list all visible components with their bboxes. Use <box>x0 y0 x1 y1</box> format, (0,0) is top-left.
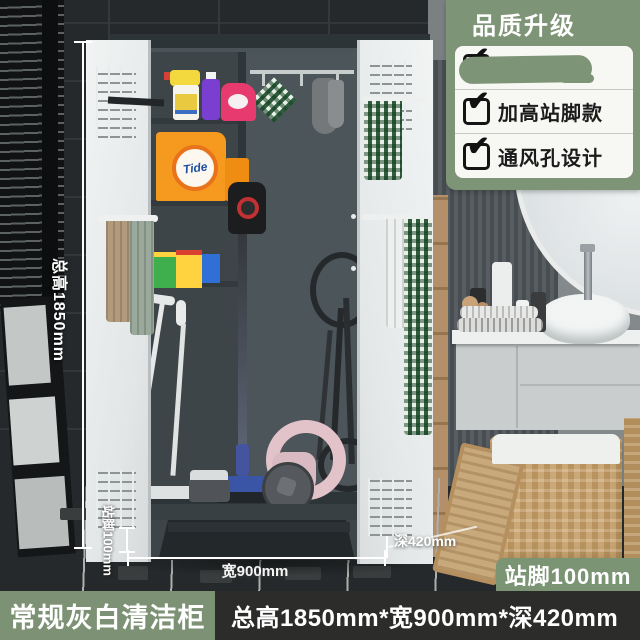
depth-label: 深420mm <box>394 531 474 551</box>
vent-grid <box>368 478 412 536</box>
dimension-cap <box>74 547 92 549</box>
dimension-cap <box>74 41 92 43</box>
towel-gray <box>130 221 154 335</box>
spec-text: 总高1850mm*宽900mm*深420mm <box>231 598 618 633</box>
height-dimension-line <box>82 42 84 548</box>
vanity-cabinet <box>456 344 640 430</box>
window-pane <box>4 305 51 386</box>
promo-title: 品质升级 <box>446 6 602 41</box>
lock-knob <box>351 214 356 219</box>
leg-height-badge: 站脚100mm <box>496 558 640 591</box>
leg-dimension-line <box>126 528 128 552</box>
purple-bottle <box>202 79 220 120</box>
hanging-cloth <box>328 80 344 128</box>
product-box <box>202 254 220 283</box>
detergent-logo: Tide <box>172 145 218 191</box>
product-box <box>176 250 202 288</box>
rattan-basket-tall <box>624 418 640 572</box>
detergent-jug-label <box>228 94 248 109</box>
dimension-cap <box>119 527 135 529</box>
check-icon: ✔ <box>463 143 490 170</box>
detergent-brand-text: Tide <box>182 159 208 176</box>
brush-grip <box>176 300 186 326</box>
product-name-bar: 常规灰白清洁柜 <box>0 591 215 640</box>
faucet <box>584 248 592 300</box>
leg-badge-text: 站脚100mm <box>505 559 632 591</box>
stick-vacuum-ring <box>237 197 259 219</box>
depth-dimension-tick <box>386 536 388 558</box>
feature-label: 加高站脚款 <box>498 97 603 126</box>
spray-bottle-label <box>175 94 197 114</box>
leg-height-label: 站脚100mm <box>104 490 119 592</box>
width-label: 宽900mm <box>200 560 310 581</box>
width-dimension-line <box>128 557 386 559</box>
brush-bristles <box>189 480 230 502</box>
vanity-drawer-seam <box>520 384 640 386</box>
stick-vacuum-tube <box>238 232 247 446</box>
check-icon: ✔ <box>463 98 490 125</box>
vanity-seam <box>516 346 518 428</box>
product-box <box>152 252 176 288</box>
product-image: Tide 总高1850mm 站脚100mm <box>0 0 640 640</box>
window-pane <box>9 396 59 465</box>
spec-bar: 总高1850mm*宽900mm*深420mm <box>215 591 640 640</box>
vessel-sink <box>538 294 630 344</box>
base-support-bar <box>168 522 350 532</box>
stick-vacuum-joint <box>236 444 249 476</box>
folded-towels <box>457 318 543 332</box>
rail-hook <box>300 74 303 86</box>
redaction-scribble <box>560 74 594 83</box>
basket-liner <box>492 434 620 464</box>
towel-checkered-long <box>404 219 432 435</box>
product-name-text: 常规灰白清洁柜 <box>10 596 206 635</box>
rail-hook <box>262 74 265 86</box>
total-height-label: 总高1850mm <box>55 255 73 365</box>
dimension-cap <box>127 550 129 566</box>
feature-row: ✔ 通风孔设计 <box>455 134 633 178</box>
spray-bottle-trigger <box>170 70 200 86</box>
towel-tan <box>106 221 132 322</box>
towel-checkered <box>364 101 402 180</box>
faucet-spout <box>580 244 595 252</box>
feature-label: 通风孔设计 <box>498 142 603 171</box>
feature-row: ✔ 加高站脚款 <box>455 90 633 134</box>
